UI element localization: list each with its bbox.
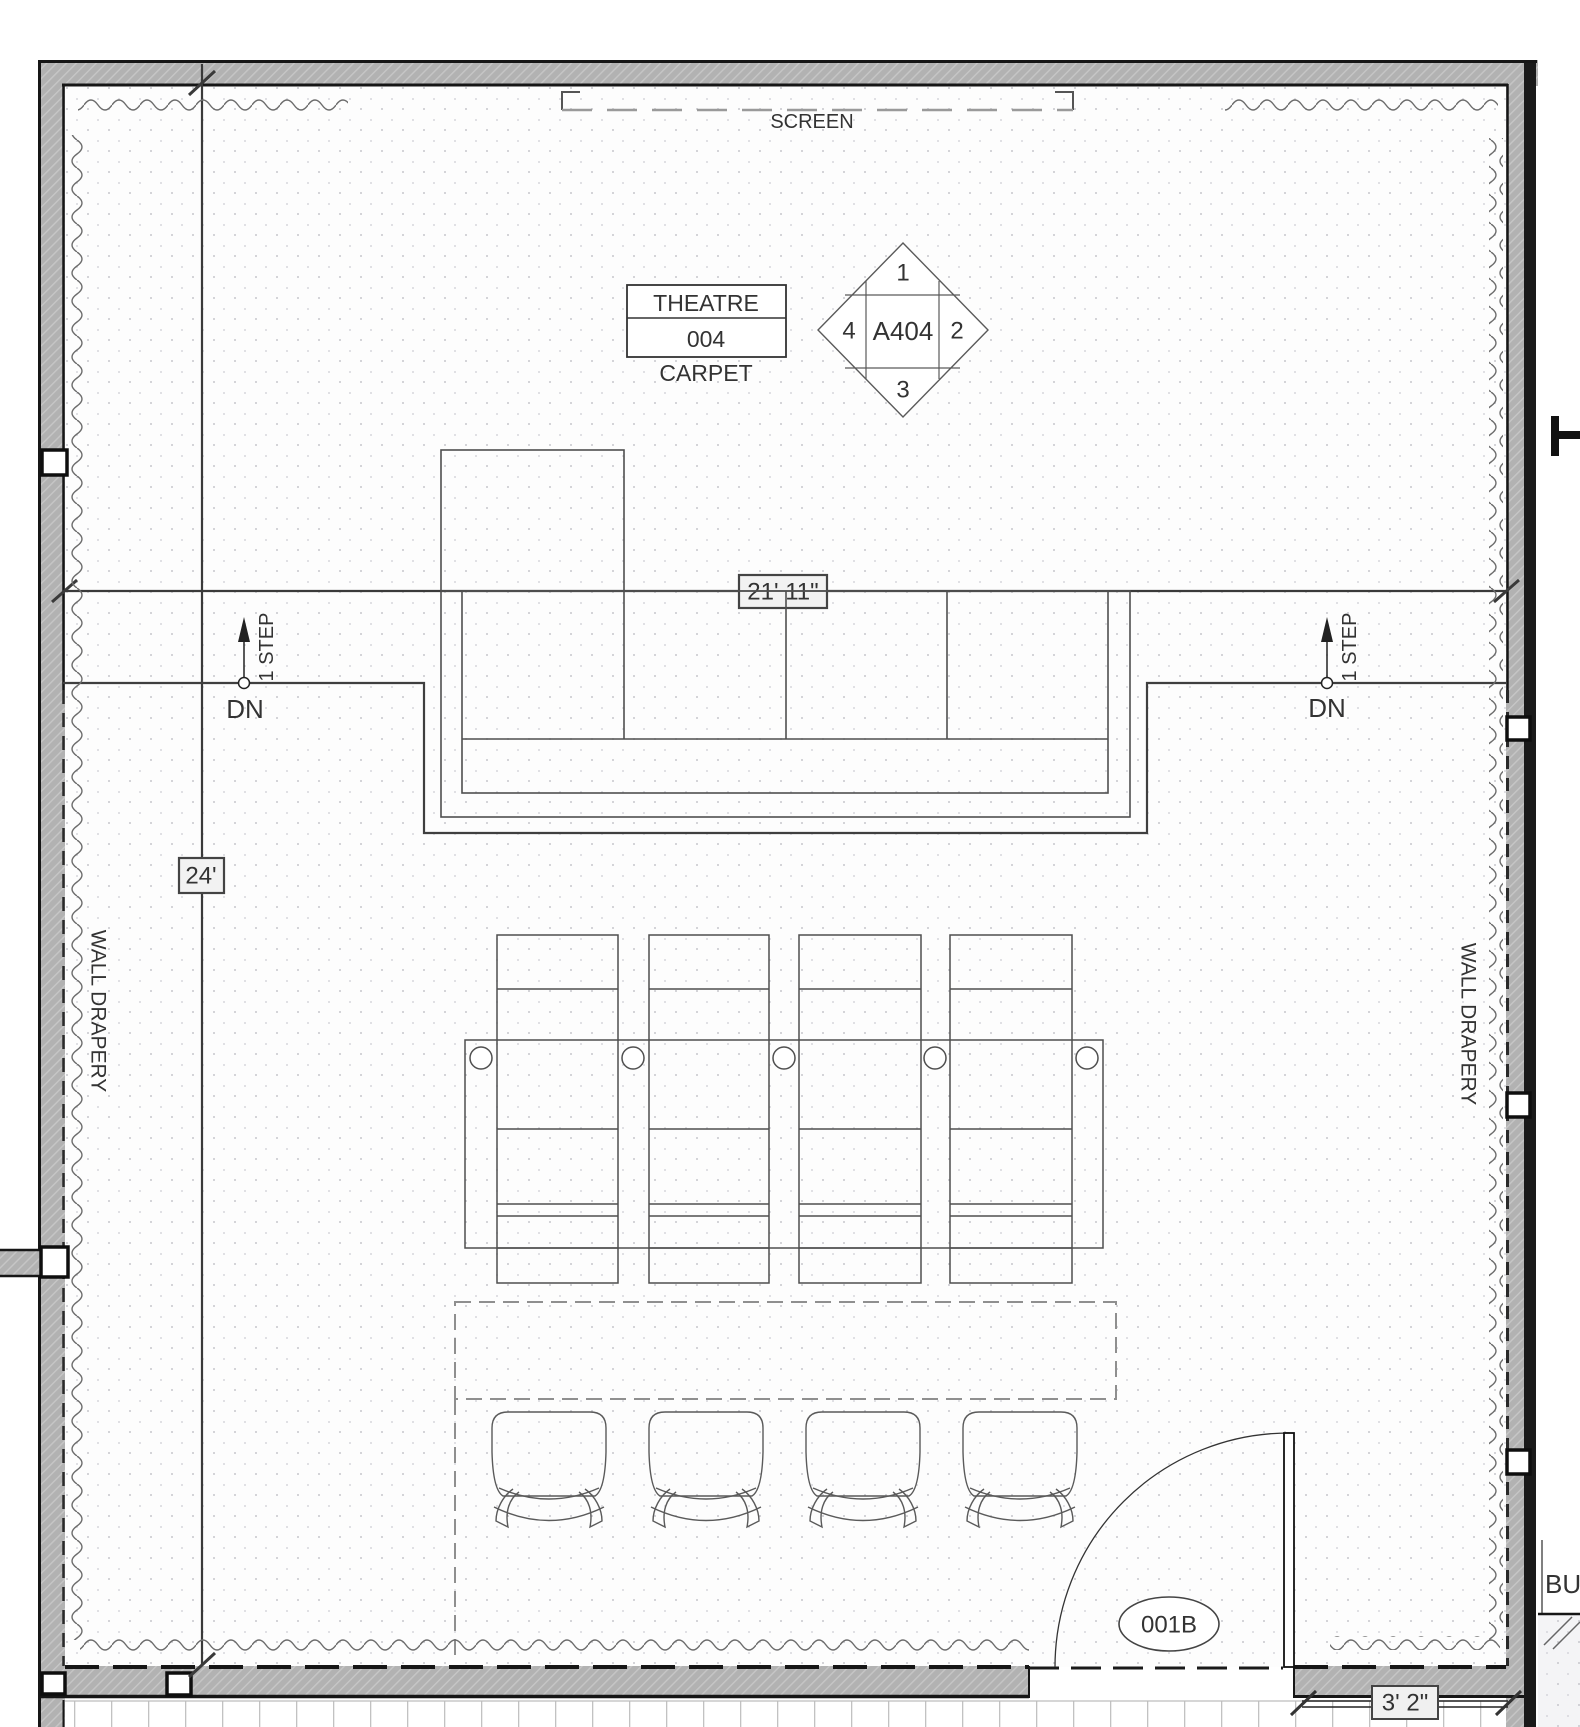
- door-leaf: [1284, 1433, 1294, 1667]
- door-tag-text: 001B: [1141, 1612, 1197, 1639]
- wall-drapery-label-left: WALL DRAPERY: [87, 930, 110, 1093]
- step-count-left: 1 STEP: [256, 613, 278, 682]
- drapery-wave-bottom-right: [1330, 1636, 1500, 1650]
- room-number: 004: [687, 326, 726, 352]
- drapery-wave-left: [71, 135, 85, 1640]
- drapery-wave-bottom-left: [80, 1638, 1029, 1652]
- elevation-marker-left: 4: [842, 318, 855, 345]
- drapery-wave-right: [1489, 138, 1503, 1640]
- column-marker: [42, 1673, 65, 1694]
- top-wall: [38, 60, 1538, 86]
- cupholder: [1076, 1047, 1098, 1069]
- column-marker: [1507, 717, 1530, 740]
- elevation-marker-top: 1: [896, 260, 909, 287]
- column-marker: [42, 450, 67, 475]
- column-marker: [1507, 1450, 1530, 1474]
- floor-finish-label: CARPET: [659, 360, 752, 386]
- column-marker: [41, 1247, 68, 1277]
- cupholder: [773, 1047, 795, 1069]
- cupholder: [622, 1047, 644, 1069]
- right-wall-fragment: [1551, 416, 1580, 456]
- door-dimension-text: 3' 2": [1382, 1690, 1428, 1717]
- width-dimension-text: 21' 11": [747, 579, 818, 606]
- adjacent-room-label: BU: [1545, 1569, 1580, 1599]
- elevation-marker-bottom: 3: [896, 377, 909, 404]
- column-marker: [167, 1673, 191, 1695]
- cupholder: [924, 1047, 946, 1069]
- step-dn-right: DN: [1308, 693, 1346, 723]
- right-wall-outer-band: [1524, 60, 1536, 1727]
- floor-plan-svg: SCREEN THEATRE 004 CARPET 1 2 3 4 A404 2…: [0, 0, 1580, 1727]
- elevation-marker-id: A404: [873, 316, 934, 346]
- room-name: THEATRE: [653, 290, 759, 316]
- step-count-right: 1 STEP: [1339, 613, 1361, 682]
- column-marker: [1507, 1093, 1530, 1117]
- floor-plan-sheet: SCREEN THEATRE 004 CARPET 1 2 3 4 A404 2…: [0, 0, 1580, 1727]
- depth-dimension-text: 24': [185, 863, 216, 890]
- screen-label: SCREEN: [770, 111, 853, 133]
- cupholder: [470, 1047, 492, 1069]
- drapery-wave-top-right: [1225, 99, 1498, 113]
- step-dn-left: DN: [226, 694, 264, 724]
- left-wall: [38, 60, 65, 1727]
- drapery-wave-top-left: [78, 99, 348, 113]
- left-wall-stub: [0, 1250, 41, 1276]
- wall-drapery-label-right: WALL DRAPERY: [1457, 943, 1480, 1106]
- elevation-marker-right: 2: [950, 318, 963, 345]
